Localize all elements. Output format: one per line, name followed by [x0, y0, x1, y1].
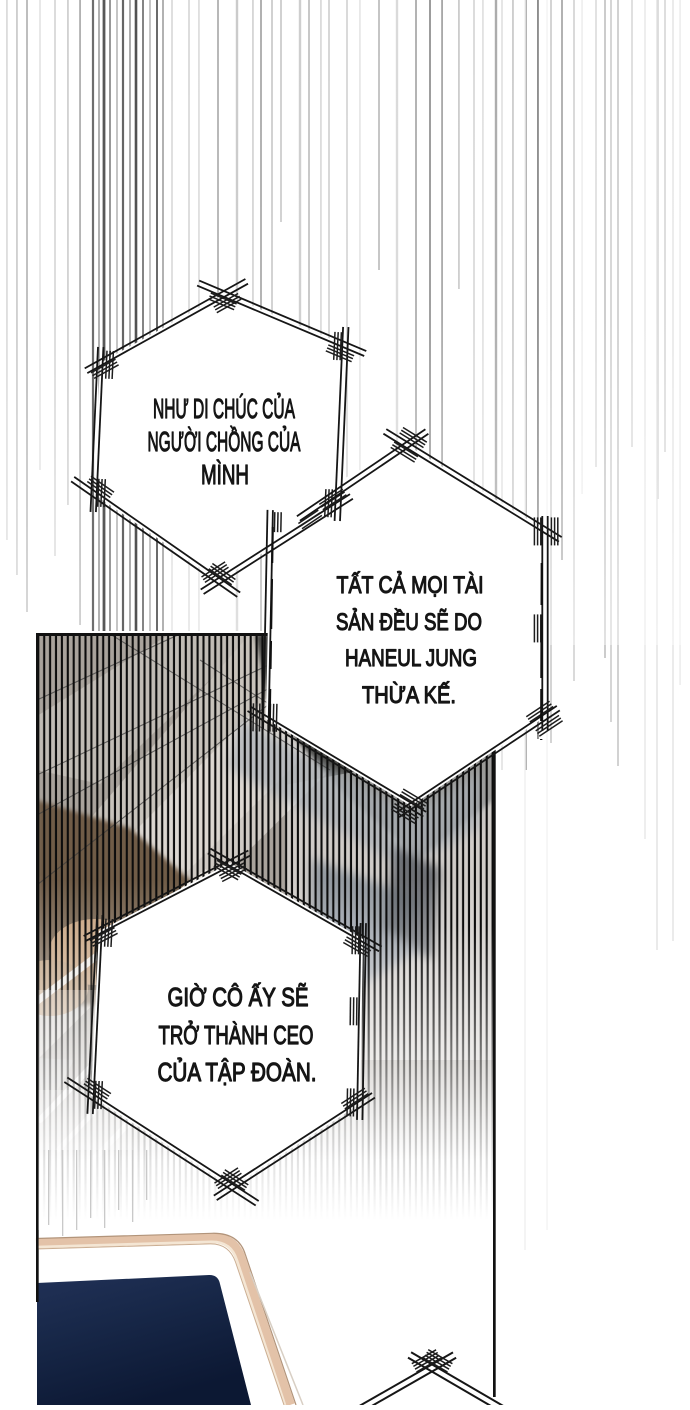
svg-text:NHƯ DI CHÚC CỦA: NHƯ DI CHÚC CỦA [153, 392, 295, 424]
svg-text:GIỜ CÔ ẤY SẼ: GIỜ CÔ ẤY SẼ [168, 982, 309, 1012]
svg-text:NGƯỜI CHỒNG CỦA: NGƯỜI CHỒNG CỦA [148, 425, 301, 457]
svg-text:SẢN ĐỀU SẼ DO: SẢN ĐỀU SẼ DO [336, 607, 482, 636]
svg-text:MÌNH: MÌNH [201, 459, 249, 490]
svg-text:TẤT CẢ MỌI TÀI: TẤT CẢ MỌI TÀI [337, 570, 484, 599]
svg-text:HANEUL JUNG: HANEUL JUNG [345, 645, 477, 672]
svg-text:CỦA TẬP ĐOÀN.: CỦA TẬP ĐOÀN. [158, 1056, 317, 1087]
svg-text:THỪA KẾ.: THỪA KẾ. [362, 681, 456, 709]
svg-text:TRỞ THÀNH CEO: TRỞ THÀNH CEO [159, 1019, 314, 1050]
